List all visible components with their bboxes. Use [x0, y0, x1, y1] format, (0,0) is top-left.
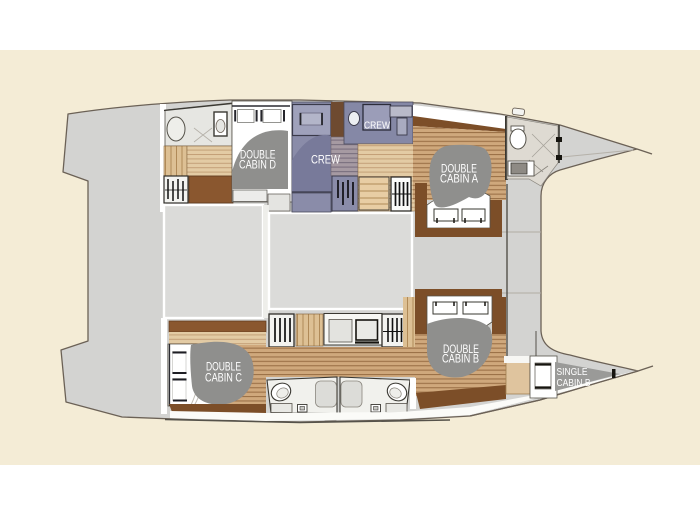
- svg-text:CABIN D: CABIN D: [239, 160, 276, 172]
- svg-text:CREW: CREW: [311, 153, 341, 167]
- svg-text:CABIN B: CABIN B: [442, 354, 479, 366]
- svg-text:CABIN A: CABIN A: [440, 174, 478, 186]
- svg-text:CREW: CREW: [364, 120, 390, 132]
- svg-text:CABIN B: CABIN B: [557, 377, 591, 389]
- svg-text:CABIN C: CABIN C: [205, 373, 242, 385]
